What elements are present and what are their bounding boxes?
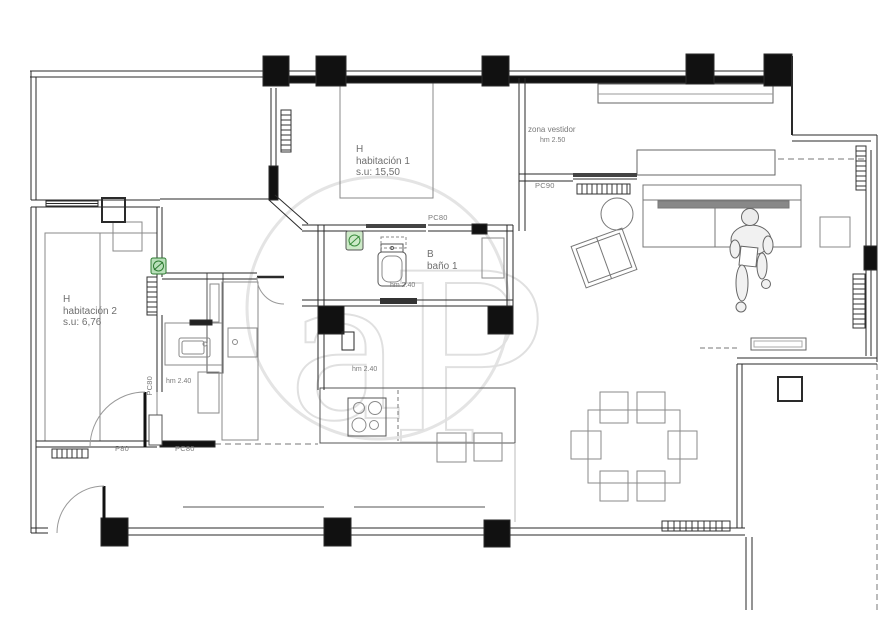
room-area: s.u: 6,76 bbox=[63, 317, 117, 329]
height-label-kitchen: hm 2.40 bbox=[352, 366, 377, 374]
doors bbox=[57, 392, 162, 533]
room-label-bedroom2: H habitación 2 s.u: 6,76 bbox=[63, 294, 117, 329]
wardrobe bbox=[598, 84, 806, 350]
person-on-sofa bbox=[730, 209, 773, 313]
kitchen-counters bbox=[165, 273, 258, 440]
height-label-dressing: hm 2.50 bbox=[540, 137, 565, 145]
room-label-bedroom1: H habitación 1 s.u: 15,50 bbox=[356, 144, 410, 179]
sofa bbox=[643, 185, 801, 247]
height-label-hall: hm 2.40 bbox=[166, 378, 191, 386]
door-label-pc90: PC90 bbox=[535, 182, 555, 191]
room-name: baño 1 bbox=[427, 261, 458, 273]
dining-table-set bbox=[571, 392, 697, 501]
floor-plan-canvas: a P bbox=[0, 0, 891, 617]
room-area: s.u: 15,50 bbox=[356, 167, 410, 179]
bed-bedroom2 bbox=[45, 222, 157, 441]
room-tag: H bbox=[356, 144, 410, 156]
room-label-bathroom1: B baño 1 bbox=[427, 249, 458, 272]
room-tag: B bbox=[427, 249, 458, 261]
room-name: habitación 2 bbox=[63, 306, 117, 318]
room-name: habitación 1 bbox=[356, 156, 410, 168]
armchair bbox=[571, 228, 637, 288]
svg-text:P: P bbox=[388, 225, 546, 498]
door-label-p80: P80 bbox=[115, 445, 129, 454]
vent-icon-bathroom bbox=[346, 231, 363, 250]
door-label-pc80-bathroom: PC80 bbox=[428, 214, 448, 223]
room-tag: H bbox=[63, 294, 117, 306]
room-label-dressing: zona vestidor bbox=[528, 125, 576, 134]
height-label-bathroom: hm 2.40 bbox=[390, 282, 415, 290]
door-label-pc80-hall-bottom: PC80 bbox=[175, 445, 195, 454]
vent-icon-hall bbox=[151, 258, 166, 274]
door-label-pc80-hall: PC80 bbox=[146, 376, 155, 396]
side-table bbox=[820, 217, 850, 247]
round-side-table bbox=[601, 198, 633, 230]
floor-plan-drawing: a P bbox=[0, 0, 891, 617]
